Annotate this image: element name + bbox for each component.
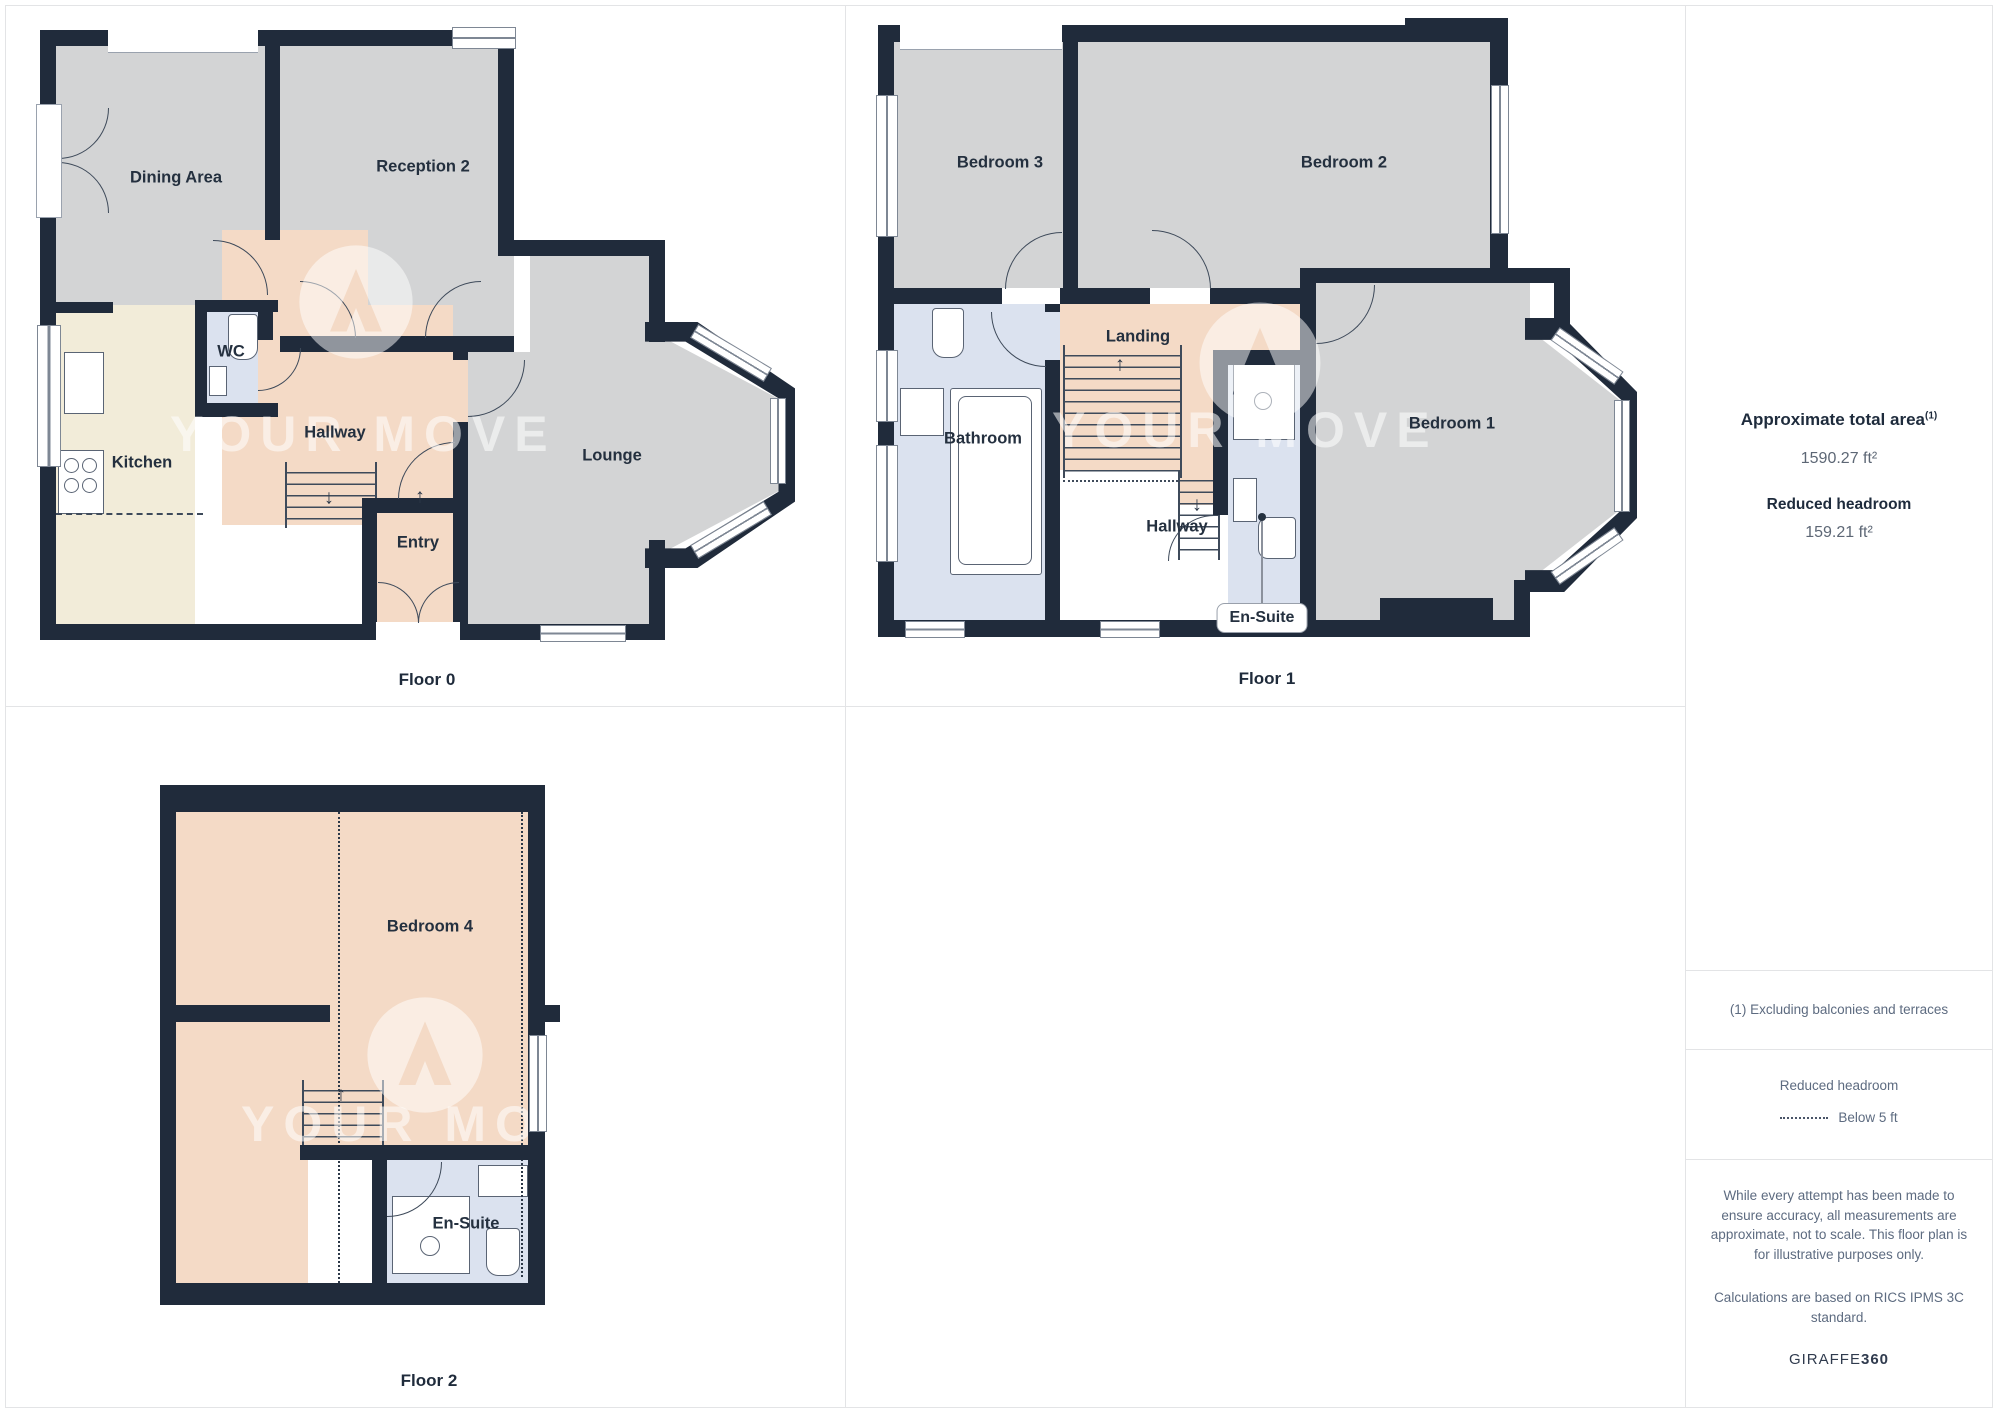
reduced-headroom-line bbox=[338, 812, 340, 1283]
wall bbox=[195, 312, 207, 403]
wall bbox=[160, 785, 545, 812]
legend-item-label: Below 5 ft bbox=[1838, 1110, 1897, 1125]
wall bbox=[1405, 18, 1508, 42]
porch-recess bbox=[900, 23, 1062, 50]
wall bbox=[372, 1160, 387, 1283]
wall bbox=[1300, 268, 1570, 283]
chimney-breast bbox=[1380, 598, 1493, 620]
room-label-hallway: Hallway bbox=[304, 424, 365, 443]
divider bbox=[5, 706, 1685, 707]
window bbox=[876, 445, 898, 562]
french-door-opening bbox=[36, 104, 62, 218]
watermark-logo bbox=[297, 243, 415, 361]
room-label-wc: WC bbox=[217, 343, 245, 362]
reduced-headroom-label: Reduced headroom bbox=[1686, 496, 1992, 514]
wall bbox=[1060, 288, 1150, 304]
window bbox=[37, 325, 61, 467]
porch-recess bbox=[108, 26, 258, 53]
room-bedroom-2 bbox=[1078, 42, 1490, 288]
stairs-down-arrow: ↓ bbox=[1192, 494, 1202, 517]
room-lounge bbox=[530, 256, 649, 356]
toilet bbox=[486, 1228, 520, 1276]
room-label-bedroom4: Bedroom 4 bbox=[387, 918, 473, 937]
stairs-up-arrow: ↑ bbox=[415, 486, 425, 509]
divider bbox=[1685, 1049, 1993, 1050]
footnote: (1) Excluding balconies and terraces bbox=[1686, 1002, 1992, 1017]
floor-caption: Floor 2 bbox=[319, 1371, 539, 1391]
wall bbox=[514, 240, 665, 256]
disclaimer-1: While every attempt has been made to ens… bbox=[1703, 1186, 1975, 1264]
toilet bbox=[932, 308, 964, 358]
ensuite-callout: En-Suite bbox=[1217, 603, 1308, 633]
reduced-headroom-line bbox=[56, 513, 203, 515]
window bbox=[529, 1035, 547, 1132]
floorplan-sheet: ↑ ↓ YOUR MOVE Dining Area Reception 2 WC… bbox=[0, 0, 2000, 1414]
divider bbox=[5, 5, 1993, 6]
room-label-hallway-f1: Hallway bbox=[1146, 518, 1207, 537]
room-label-reception: Reception 2 bbox=[376, 158, 470, 177]
watermark-text: YOUR MOVE bbox=[1052, 401, 1439, 459]
legend-row: Below 5 ft bbox=[1686, 1110, 1992, 1125]
bathtub-inner bbox=[958, 396, 1032, 565]
total-area-value: 1590.27 ft² bbox=[1686, 450, 1992, 468]
floor-caption: Floor 1 bbox=[1157, 669, 1377, 689]
room-label-dining: Dining Area bbox=[130, 169, 222, 188]
wall bbox=[649, 540, 665, 632]
wall bbox=[1554, 283, 1570, 333]
toilet bbox=[1258, 517, 1296, 559]
room-label-bathroom: Bathroom bbox=[944, 430, 1022, 449]
wall bbox=[453, 336, 514, 352]
room-label-bedroom3: Bedroom 3 bbox=[957, 154, 1043, 173]
room-label-kitchen: Kitchen bbox=[112, 454, 173, 473]
total-area-footnote-marker: (1) bbox=[1925, 410, 1937, 421]
wall bbox=[362, 498, 377, 624]
legend-title: Reduced headroom bbox=[1686, 1078, 1992, 1093]
total-area-title: Approximate total area(1) bbox=[1686, 410, 1992, 430]
window bbox=[1100, 621, 1160, 638]
watermark-text: YOUR MOVE bbox=[241, 1095, 528, 1153]
reduced-headroom-line bbox=[1063, 480, 1178, 482]
divider bbox=[1685, 970, 1993, 971]
wall bbox=[258, 312, 273, 340]
window bbox=[905, 621, 965, 638]
wall bbox=[894, 288, 1002, 304]
wall bbox=[195, 300, 278, 312]
entry-door-opening bbox=[376, 622, 460, 642]
door-opening bbox=[1045, 312, 1060, 360]
floor-caption: Floor 0 bbox=[317, 670, 537, 690]
divider bbox=[1685, 5, 1686, 1408]
room-label-lounge: Lounge bbox=[582, 447, 642, 466]
wall bbox=[649, 256, 665, 342]
wall bbox=[362, 498, 460, 513]
brand-suffix: 360 bbox=[1861, 1351, 1889, 1368]
divider bbox=[5, 1407, 1993, 1408]
reduced-headroom-line bbox=[521, 812, 523, 1277]
sink bbox=[1233, 478, 1257, 522]
shower-drain bbox=[420, 1236, 440, 1256]
window bbox=[770, 398, 786, 484]
room-label-entry: Entry bbox=[397, 534, 439, 553]
stairs-down-arrow: ↓ bbox=[324, 487, 334, 510]
understairs-void bbox=[203, 525, 362, 624]
divider bbox=[1685, 1159, 1993, 1160]
reduced-headroom-value: 159.21 ft² bbox=[1686, 524, 1992, 542]
sink bbox=[900, 388, 944, 436]
wall bbox=[878, 620, 1530, 637]
room-label-ensuite-f2: En-Suite bbox=[433, 1215, 500, 1234]
watermark-clip: YOUR MOVE bbox=[176, 1095, 528, 1153]
window bbox=[876, 350, 898, 422]
wall bbox=[160, 785, 176, 1305]
window bbox=[452, 27, 516, 49]
divider bbox=[1992, 5, 1993, 1408]
wall bbox=[176, 1005, 330, 1022]
room-label-landing: Landing bbox=[1106, 328, 1170, 347]
wall bbox=[1514, 580, 1530, 620]
hob-ring bbox=[64, 478, 79, 493]
info-panel: Approximate total area(1) 1590.27 ft² Re… bbox=[1686, 6, 1992, 1407]
window bbox=[540, 625, 626, 642]
sink bbox=[209, 366, 227, 396]
wall bbox=[265, 46, 280, 240]
wall bbox=[1063, 42, 1078, 288]
window bbox=[1614, 400, 1630, 512]
hob-ring bbox=[82, 478, 97, 493]
wall bbox=[56, 302, 113, 313]
legend-dotted-swatch bbox=[1780, 1117, 1828, 1119]
window bbox=[1491, 85, 1509, 234]
window bbox=[876, 95, 898, 237]
kitchen-sink bbox=[64, 352, 104, 414]
wall bbox=[498, 30, 514, 256]
hob-ring bbox=[82, 458, 97, 473]
wall bbox=[528, 1005, 560, 1022]
brand-logo: GIRAFFE360 bbox=[1686, 1351, 1992, 1368]
room-label-bedroom2: Bedroom 2 bbox=[1301, 154, 1387, 173]
hob-ring bbox=[64, 458, 79, 473]
total-area-title-text: Approximate total area bbox=[1741, 410, 1925, 429]
wall bbox=[160, 1283, 545, 1305]
stairs-up-arrow: ↑ bbox=[1115, 354, 1125, 377]
brand-name: GIRAFFE bbox=[1789, 1351, 1861, 1368]
callout-anchor-dot bbox=[1258, 513, 1266, 521]
understairs-void bbox=[308, 1160, 372, 1283]
callout-leader-line bbox=[1261, 521, 1263, 607]
room-label-bedroom1: Bedroom 1 bbox=[1409, 415, 1495, 434]
disclaimer-2: Calculations are based on RICS IPMS 3C s… bbox=[1703, 1288, 1975, 1327]
